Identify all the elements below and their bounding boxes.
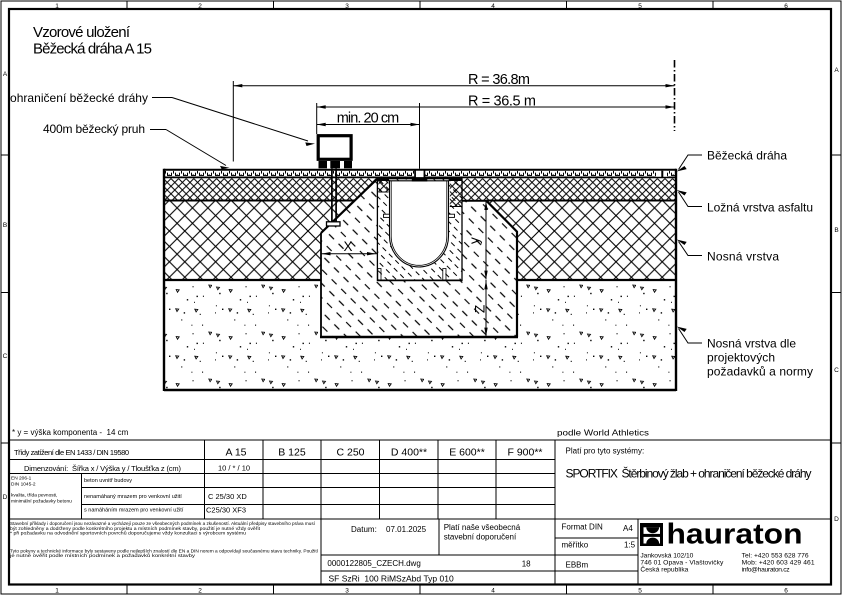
svg-text:A 15: A 15 [225, 447, 246, 459]
svg-text:kvalita, třída pevnosti,: kvalita, třída pevnosti, [11, 493, 57, 499]
svg-text:C: C [3, 353, 8, 360]
svg-text:požadavků a normy: požadavků a normy [707, 365, 813, 379]
svg-text:SF SzRi 100 RiMSzAbd Typ 010: SF SzRi 100 RiMSzAbd Typ 010 [329, 574, 454, 584]
svg-text:Mob: +420 603 429 461: Mob: +420 603 429 461 [742, 559, 815, 566]
svg-text:je nutné ověřit podle místních: je nutné ověřit podle místních podmínek … [9, 552, 196, 558]
svg-text:A: A [834, 67, 839, 74]
svg-text:Dimenzování: Šířka x / Výška: Dimenzování: Šířka x / Výška y / Tloušťk… [24, 464, 182, 473]
svg-text:5: 5 [638, 588, 642, 595]
svg-text:Česká republika: Česká republika [640, 565, 688, 574]
svg-text:beton uvnitř budovy: beton uvnitř budovy [84, 478, 132, 484]
svg-text:Běžecká dráha A 15: Běžecká dráha A 15 [33, 41, 152, 58]
svg-text:stavební doporučení: stavební doporučení [444, 533, 517, 542]
svg-text:2: 2 [198, 588, 202, 595]
svg-text:EN 206-1: EN 206-1 [11, 476, 32, 482]
svg-text:Jankovská 102/10: Jankovská 102/10 [640, 552, 693, 559]
svg-text:A: A [3, 71, 8, 78]
svg-text:s namáháním mrazem pro venkovn: s namáháním mrazem pro venkovní užití [84, 508, 184, 514]
svg-text:400m běžecký pruh: 400m běžecký pruh [43, 122, 145, 136]
svg-text:hauraton: hauraton [667, 519, 803, 551]
svg-text:18: 18 [522, 560, 531, 569]
svg-text:5: 5 [638, 3, 642, 10]
svg-text:C25/30 XF3: C25/30 XF3 [206, 506, 246, 515]
svg-text:Format DIN: Format DIN [562, 523, 604, 532]
svg-text:měřítko: měřítko [562, 541, 589, 550]
svg-text:C 250: C 250 [336, 447, 364, 459]
svg-text:3: 3 [345, 588, 349, 595]
svg-text:746 01 Opava - Vlaštovičky: 746 01 Opava - Vlaštovičky [640, 559, 724, 566]
svg-text:3: 3 [345, 3, 349, 10]
svg-text:info@hauraton.cz: info@hauraton.cz [742, 567, 791, 574]
svg-text:1: 1 [55, 588, 59, 595]
svg-text:C 25/30 XD: C 25/30 XD [208, 492, 247, 501]
svg-text:Běžecká dráha: Běžecká dráha [707, 149, 787, 163]
svg-text:Nosná vrstva dle: Nosná vrstva dle [707, 337, 796, 351]
svg-text:nenamáhaný mrazem pro venkovní: nenamáhaný mrazem pro venkovní užití [84, 494, 182, 500]
svg-text:podle World Athletics: podle World Athletics [557, 429, 649, 438]
svg-text:ohraničení běžecké dráhy: ohraničení běžecké dráhy [10, 91, 148, 105]
svg-text:B: B [834, 227, 838, 234]
svg-text:projektových: projektových [707, 351, 775, 365]
svg-text:D 400**: D 400** [391, 447, 427, 459]
svg-text:A4: A4 [623, 524, 633, 533]
svg-text:R = 36.8m: R = 36.8m [468, 72, 530, 88]
svg-text:1: 1 [55, 3, 59, 10]
svg-text:4: 4 [491, 588, 495, 595]
svg-text:B: B [3, 222, 7, 229]
svg-text:2: 2 [198, 3, 202, 10]
svg-text:EBBm: EBBm [566, 561, 589, 570]
svg-text:DIN 1045-2: DIN 1045-2 [11, 482, 36, 488]
svg-text:4: 4 [491, 3, 495, 10]
svg-text:Platí pro tyto systémy:: Platí pro tyto systémy: [566, 447, 645, 456]
svg-text:F 900**: F 900** [507, 447, 542, 459]
svg-text:E 600**: E 600** [449, 447, 485, 459]
svg-text:X: X [343, 239, 352, 254]
svg-text:Datum:: Datum: [351, 525, 377, 534]
svg-text:Platí naše všeobecná: Platí naše všeobecná [444, 523, 521, 532]
svg-text:min. 20 cm: min. 20 cm [337, 111, 400, 127]
svg-text:D: D [834, 516, 839, 523]
svg-text:y: y [467, 237, 482, 244]
svg-text:minimální požadavky betonu: minimální požadavky betonu [11, 499, 72, 505]
svg-text:0000122805_CZECH.dwg: 0000122805_CZECH.dwg [327, 559, 420, 568]
svg-text:D: D [3, 494, 8, 501]
svg-text:10 / * / 10: 10 / * / 10 [218, 464, 250, 473]
svg-text:Ložná vrstva asfaltu: Ložná vrstva asfaltu [707, 201, 813, 215]
svg-text:* y = výška komponenta - 14 c: * y = výška komponenta - 14 cm [12, 428, 129, 437]
svg-text:Z: Z [473, 305, 488, 313]
svg-text:* při požadavku na odvodnění s: * při požadavku na odvodnění sportovních… [10, 530, 246, 536]
svg-text:C: C [834, 367, 839, 374]
svg-text:6: 6 [784, 588, 788, 595]
svg-text:07.01.2025: 07.01.2025 [386, 525, 427, 534]
svg-text:Třídy zatížení dle EN 1433 / D: Třídy zatížení dle EN 1433 / DIN 19580 [14, 448, 129, 457]
svg-text:B 125: B 125 [278, 447, 306, 459]
svg-text:Tel: +420 553 628 776: Tel: +420 553 628 776 [742, 552, 809, 559]
svg-text:SPORTFIX Štěrbinový žlab + oh: SPORTFIX Štěrbinový žlab + ohraničení bě… [566, 466, 812, 481]
svg-text:Vzorové uložení: Vzorové uložení [33, 24, 131, 41]
svg-text:R = 36.5 m: R = 36.5 m [468, 94, 536, 110]
svg-text:1:5: 1:5 [624, 541, 636, 550]
svg-text:6: 6 [784, 3, 788, 10]
svg-text:Nosná vrstva: Nosná vrstva [707, 250, 779, 264]
